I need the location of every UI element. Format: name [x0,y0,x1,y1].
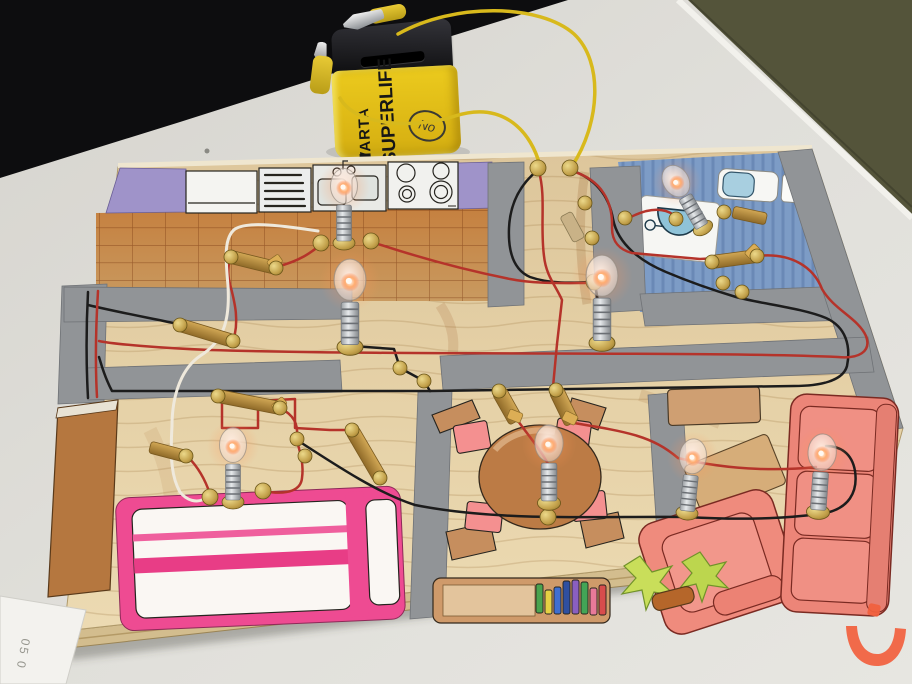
brass-fastener [273,401,287,415]
brass-fastener [298,449,312,463]
brass-fastener [578,196,592,210]
book [572,580,579,614]
brass-fastener [290,432,304,446]
book [545,590,552,614]
brass-fastener [716,276,730,290]
kitchen-wall-purple-right [458,162,492,209]
brass-fastener [618,211,632,225]
sink-drain [645,220,656,231]
sofa [780,393,899,616]
paper-note: 05 0 [0,596,86,684]
book [536,584,543,613]
brass-fastener [224,250,238,264]
brass-fastener [669,212,683,226]
brass-fastener [417,374,431,388]
wall-below-kitchen [64,287,352,322]
kitchen-wall-purple-left [106,168,186,213]
brass-fastener [345,423,359,437]
sofa-cushion [791,538,874,604]
brass-fastener [393,361,407,375]
watermark-glyph-dot [867,603,881,617]
brass-fastener [373,471,387,485]
brass-fastener [530,160,546,176]
kitchen-counter [186,171,257,213]
toilet-lid [722,172,755,198]
brass-fastener [549,383,563,397]
brass-fastener [750,249,764,263]
bed-pillow [365,499,400,605]
sideboard [667,386,760,425]
watermark-glyph-bowl [846,626,906,666]
brass-fastener [585,231,599,245]
brass-fastener [705,255,719,269]
bed [115,486,406,631]
wardrobe [48,400,118,597]
wire-black [87,292,89,398]
wall-corridor-left [488,162,524,307]
sofa-cushion [794,471,877,539]
bookshelf-empty [443,585,535,616]
brass-fastener [313,235,329,251]
kitchen [96,161,492,301]
book [599,585,606,615]
brass-fastener [735,285,749,299]
circuit-board-layer: 05 0 [0,0,912,684]
brass-fastener [269,261,283,275]
brass-fastener [562,160,578,176]
kitchen-tile-grid [96,208,490,301]
book [581,582,588,614]
chair-seat [453,420,491,453]
brass-fastener [211,389,225,403]
brass-fastener [202,489,218,505]
brass-fastener [173,318,187,332]
book [563,581,570,614]
book [590,588,597,615]
brass-fastener [363,233,379,249]
brass-fastener [179,449,193,463]
brass-fastener [540,509,556,525]
brass-fastener [717,205,731,219]
brass-fastener [226,334,240,348]
wire-yellow-loop [398,11,595,166]
bookshelf [433,578,610,623]
book [554,587,561,614]
sink-tap [655,226,664,227]
photo-scene: VARTA SUPERLIFE No [0,0,912,684]
paper-sheet [0,596,86,684]
brass-fastener [492,384,506,398]
brass-fastener [255,483,271,499]
